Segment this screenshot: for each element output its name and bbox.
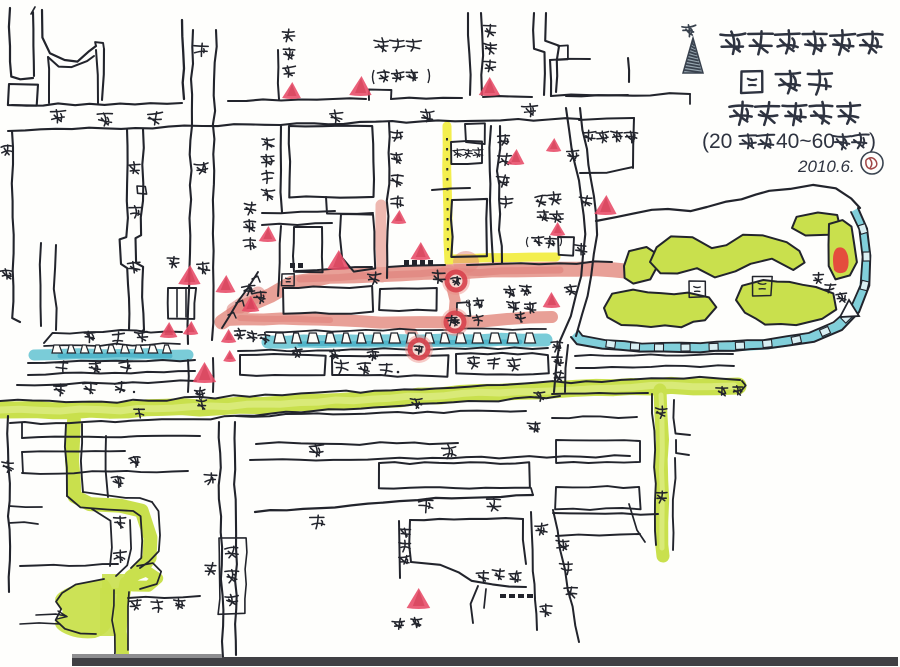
svg-text:(20: (20 [702, 130, 732, 153]
svg-text:40~60: 40~60 [776, 130, 835, 153]
svg-text:): ) [869, 130, 876, 153]
svg-text:2010.6.: 2010.6. [797, 157, 855, 176]
